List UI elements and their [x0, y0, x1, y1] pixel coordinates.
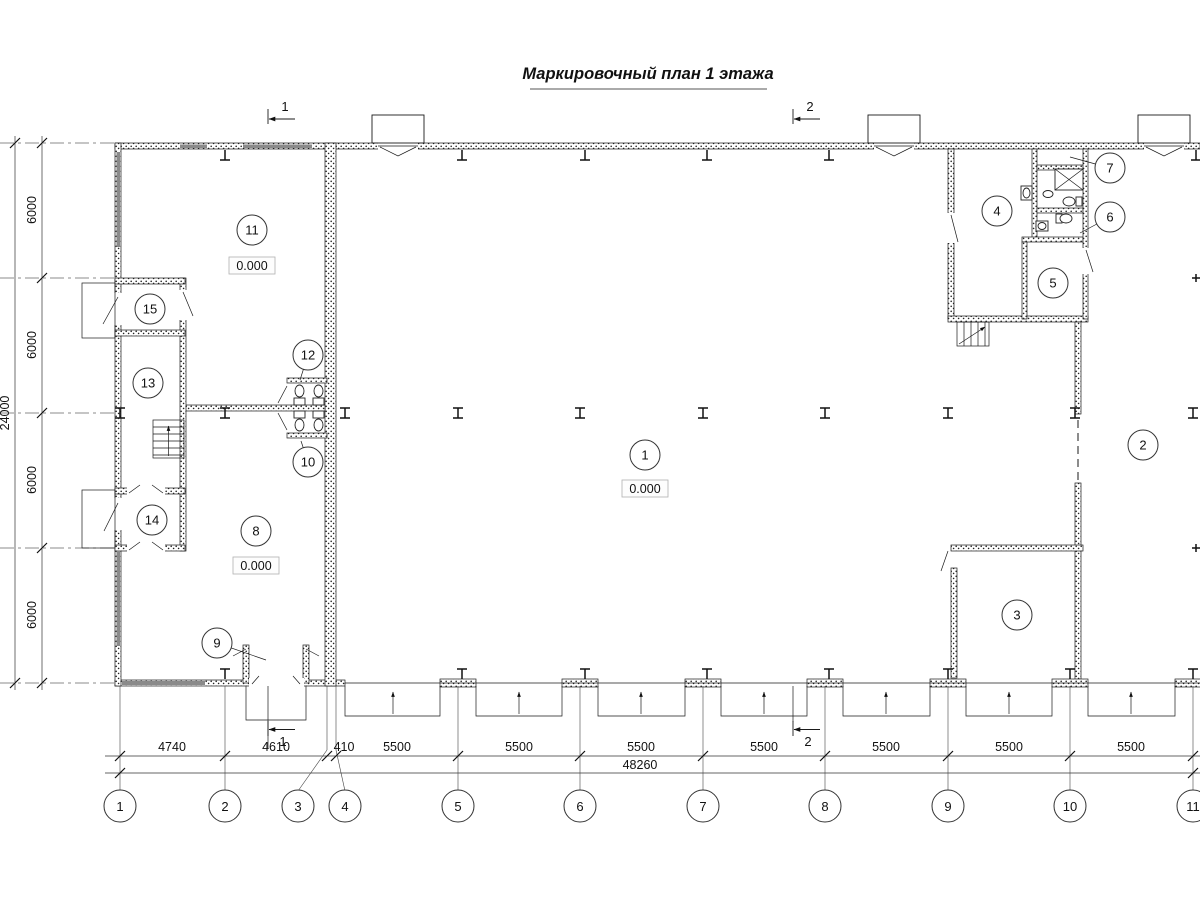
column-mark-bottom	[702, 669, 712, 679]
dimension-value: 410	[334, 740, 355, 754]
floor-plan-page: Маркировочный план 1 этажа	[0, 0, 1200, 900]
axis-label: 6	[576, 799, 583, 814]
axis-label: 2	[221, 799, 228, 814]
dimension-value: 4740	[158, 740, 186, 754]
section-marks: 1122	[268, 99, 820, 749]
room-number: 7	[1106, 161, 1113, 176]
dimension-value: 6000	[25, 466, 39, 494]
ramp-outline	[843, 686, 930, 716]
dimension-value: 5500	[995, 740, 1023, 754]
column-mark-top	[220, 150, 230, 160]
section-label: 2	[806, 99, 813, 114]
entrance-canopies	[372, 115, 1190, 143]
dimension-value: 5500	[1117, 740, 1145, 754]
section-trace-lines	[268, 686, 793, 748]
room-number: 12	[301, 348, 315, 363]
axis-centerlines	[0, 143, 118, 683]
column-mark-top	[702, 150, 712, 160]
dimension-value: 5500	[872, 740, 900, 754]
room-number: 8	[252, 524, 259, 539]
section-label: 2	[804, 734, 811, 749]
entry-arrows	[393, 692, 1131, 714]
floor-plan-drawing: Маркировочный план 1 этажа	[0, 0, 1200, 900]
stairs	[153, 322, 989, 458]
room-number: 1	[641, 448, 648, 463]
column-mark-top	[824, 150, 834, 160]
room-number: 9	[213, 636, 220, 651]
ramp-outline	[1088, 686, 1175, 716]
room-number: 3	[1013, 608, 1020, 623]
column-mark-top	[457, 150, 467, 160]
column-mark-bottom	[220, 669, 230, 679]
axis-bubbles: 1234567891011	[104, 686, 1200, 822]
section-label: 1	[279, 734, 286, 749]
room-number: 13	[141, 376, 155, 391]
axis-label: 7	[699, 799, 706, 814]
room-number: 4	[993, 204, 1000, 219]
double-wall-axis-3-4	[325, 143, 336, 686]
column-mark-bottom	[457, 669, 467, 679]
axis-label: 11	[1186, 799, 1200, 814]
section-label: 1	[281, 99, 288, 114]
dimension-value: 6000	[25, 601, 39, 629]
column-mark-bottom	[1188, 669, 1198, 679]
axis-label: 3	[294, 799, 301, 814]
column-i-beam	[453, 408, 463, 418]
overall-dimension: 48260	[623, 758, 658, 772]
elevation-value: 0.000	[629, 482, 660, 496]
ramp-outline	[598, 686, 685, 716]
column-i-beam	[943, 408, 953, 418]
column-mark-bottom	[580, 669, 590, 679]
axis-label: 5	[454, 799, 461, 814]
column-i-beam	[1188, 408, 1198, 418]
axis-label: 10	[1063, 799, 1077, 814]
room-number: 2	[1139, 438, 1146, 453]
stair-right-block	[957, 322, 989, 346]
column-i-beam	[575, 408, 585, 418]
sanitary-fixtures	[294, 169, 1083, 431]
room-number: 11	[245, 223, 259, 238]
axis-label: 1	[116, 799, 123, 814]
overall-dimension: 24000	[0, 396, 12, 431]
dimension-value: 5500	[383, 740, 411, 754]
column-mark-top	[580, 150, 590, 160]
dimension-value: 6000	[25, 331, 39, 359]
dimension-value: 6000	[25, 196, 39, 224]
column-i-beam	[820, 408, 830, 418]
elevation-value: 0.000	[240, 559, 271, 573]
dimension-lines	[10, 136, 1200, 773]
stair-room-13	[153, 420, 184, 458]
dimension-value: 5500	[505, 740, 533, 754]
column-i-beam	[698, 408, 708, 418]
room-number: 5	[1049, 276, 1056, 291]
shaft-with-cross	[1055, 169, 1083, 190]
loading-ramps	[345, 686, 1175, 716]
axis-label: 9	[944, 799, 951, 814]
elevation-value: 0.000	[236, 259, 267, 273]
room-number: 10	[301, 455, 315, 470]
ramp-outline	[345, 686, 440, 716]
column-i-beam	[340, 408, 350, 418]
column-mark-bottom	[824, 669, 834, 679]
drawing-title: Маркировочный план 1 этажа	[522, 65, 773, 83]
column-mark-top	[1191, 150, 1200, 160]
bottom-piers	[345, 679, 1200, 687]
column-mark-bottom	[1065, 669, 1075, 679]
dimension-value: 5500	[627, 740, 655, 754]
dimension-value: 5500	[750, 740, 778, 754]
room-number: 15	[143, 302, 157, 317]
axis-label: 4	[341, 799, 348, 814]
axis-label: 8	[821, 799, 828, 814]
room-number: 14	[145, 513, 159, 528]
room-number: 6	[1106, 210, 1113, 225]
